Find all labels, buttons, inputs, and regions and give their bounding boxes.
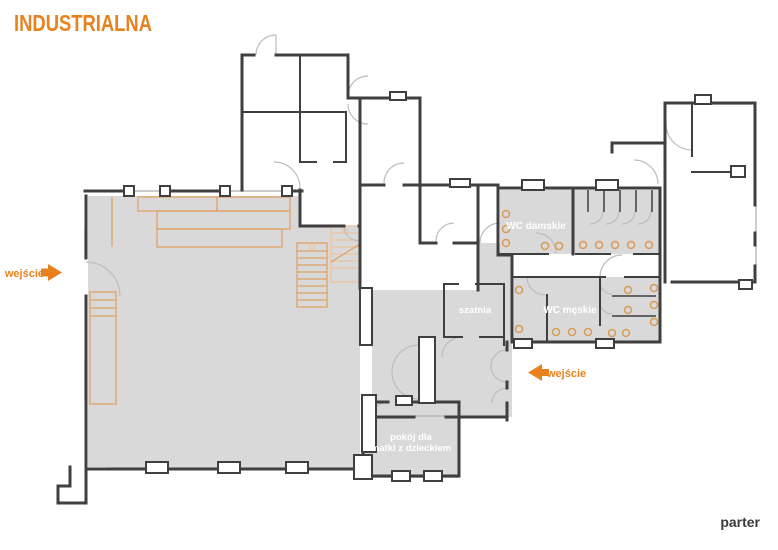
mother-child-label-line1: pokój dla (390, 432, 432, 443)
entrance-left-label: wejście (4, 268, 44, 280)
entrance-right-arrow-icon (528, 364, 549, 381)
floor-plan-page: { "logo": "INDUSTRIALNA", "floor_label":… (0, 0, 778, 550)
cloakroom-label: szatnia (459, 305, 492, 316)
wc-men-label: WC męskie (543, 305, 597, 316)
floor-plan-drawing: WC damskie WC męskie szatnia pokój dla m… (0, 0, 778, 550)
main-hall-area (88, 196, 360, 467)
wc-women-label: WC damskie (506, 221, 566, 232)
entrance-left-arrow-icon (41, 264, 62, 281)
entrance-right-label: wejście (546, 368, 586, 380)
floor-name: parter (720, 514, 760, 530)
mother-child-label-line2: matki z dzieckiem (371, 443, 451, 454)
